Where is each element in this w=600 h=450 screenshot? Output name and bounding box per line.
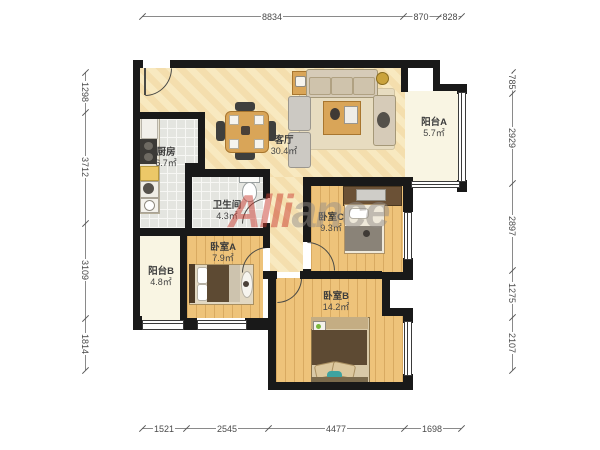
balcony-b-window xyxy=(142,320,184,330)
bed-a-throw xyxy=(229,265,240,302)
room-area: 4.8㎡ xyxy=(148,277,174,288)
wall-segment xyxy=(133,316,142,330)
bedroom-c-window xyxy=(404,212,412,260)
sofa-cushion xyxy=(353,77,375,95)
room-label-kitchen: 厨房 6.7㎡ xyxy=(155,147,177,169)
room-area: 4.3㎡ xyxy=(213,211,242,222)
wall-segment xyxy=(198,112,205,165)
room-name: 卧室B xyxy=(323,291,350,302)
room-label-bathroom: 卫生间 4.3㎡ xyxy=(213,200,242,222)
dim-value: 3712 xyxy=(80,156,90,178)
wall-segment xyxy=(185,169,270,177)
dim-value: 870 xyxy=(412,12,429,22)
stove-burner xyxy=(144,142,153,150)
dim-value: 785 xyxy=(507,73,517,90)
wall-segment xyxy=(170,60,440,68)
wall-segment xyxy=(133,112,205,119)
plate xyxy=(254,139,264,149)
toilet-bowl xyxy=(242,182,257,202)
dim-tick xyxy=(458,13,465,20)
dim-value: 2107 xyxy=(507,332,517,354)
wall-segment xyxy=(133,228,270,236)
dim-value: 3109 xyxy=(80,259,90,281)
dining-chair xyxy=(216,121,225,141)
sofa-cushion xyxy=(331,77,353,95)
room-label-balcony-b: 阳台B 4.8㎡ xyxy=(148,266,174,288)
dim-value: 4477 xyxy=(325,424,347,434)
room-name: 卧室C xyxy=(318,212,344,223)
dim-value: 2545 xyxy=(216,424,238,434)
wall-segment xyxy=(185,172,192,236)
wall-segment xyxy=(268,278,276,386)
room-label-balcony-a: 阳台A 5.7㎡ xyxy=(421,117,447,139)
balcony-a-bottom-window xyxy=(411,181,460,188)
hallway-floor xyxy=(270,177,303,272)
chaise-cushion xyxy=(377,112,390,128)
plate xyxy=(229,115,239,125)
room-label-living: 客厅 30.4㎡ xyxy=(271,135,298,157)
dining-chair xyxy=(235,102,255,111)
sink-basin xyxy=(143,183,154,194)
room-area: 14.2㎡ xyxy=(323,302,350,313)
building-notch xyxy=(390,280,403,308)
bed-a-headboard xyxy=(189,264,195,303)
dim-value: 2929 xyxy=(507,127,517,149)
bedroom-b-window xyxy=(404,321,412,376)
plate xyxy=(254,115,264,125)
room-name: 卫生间 xyxy=(213,200,242,211)
dim-value: 1521 xyxy=(153,424,175,434)
wall-segment xyxy=(303,177,413,186)
wall-segment xyxy=(180,236,187,330)
balcony-a-window xyxy=(458,92,466,182)
tv-screen xyxy=(356,189,386,201)
room-name: 阳台A xyxy=(421,117,447,128)
teapot xyxy=(330,108,340,120)
room-area: 5.7㎡ xyxy=(421,128,447,139)
table-lamp xyxy=(295,76,306,87)
bed-b-duvet xyxy=(312,330,367,365)
dim-value: 1814 xyxy=(80,333,90,355)
wall-segment xyxy=(268,382,413,390)
dimension-line-bottom xyxy=(142,428,461,429)
bed-a-duvet xyxy=(207,265,229,302)
bedside-rug-dot xyxy=(243,281,249,287)
kettle-lid xyxy=(144,200,155,211)
centerpiece xyxy=(241,126,250,135)
wall-segment xyxy=(263,177,270,198)
room-area: 9.3㎡ xyxy=(318,223,344,234)
dim-value: 2897 xyxy=(507,215,517,237)
dim-value: 8834 xyxy=(261,12,283,22)
tray xyxy=(344,106,358,124)
pillow xyxy=(349,208,369,219)
room-area: 6.7㎡ xyxy=(155,158,177,169)
dim-tick xyxy=(82,367,89,374)
wall-segment xyxy=(382,308,413,316)
room-name: 阳台B xyxy=(148,266,174,277)
wall-segment xyxy=(263,236,270,248)
plate xyxy=(229,139,239,149)
dim-tick xyxy=(509,367,516,374)
dim-tick xyxy=(458,425,465,432)
wall-segment xyxy=(245,318,276,330)
dim-value: 1698 xyxy=(421,424,443,434)
room-name: 卧室A xyxy=(210,242,236,253)
bedroom-a-window xyxy=(197,320,247,330)
wall-segment xyxy=(133,60,140,318)
room-name: 厨房 xyxy=(155,147,177,158)
cutting-board xyxy=(141,116,158,139)
floor-plan: 厨房 6.7㎡ 客厅 30.4㎡ 阳台A 5.7㎡ 卫生间 4.3㎡ 卧室C 9… xyxy=(0,0,600,450)
wall-segment xyxy=(303,177,311,242)
dim-value: 1298 xyxy=(80,81,90,103)
room-area: 7.9㎡ xyxy=(210,253,236,264)
wall-segment xyxy=(303,269,311,278)
room-label-bedroom-a: 卧室A 7.9㎡ xyxy=(210,242,236,264)
room-label-bedroom-c: 卧室C 9.3㎡ xyxy=(318,212,344,234)
bed-c-cushion xyxy=(363,230,370,237)
wall-segment xyxy=(300,271,382,279)
decor-bowl xyxy=(376,72,389,85)
armchair xyxy=(288,96,311,131)
wall-segment xyxy=(401,68,408,92)
room-name: 客厅 xyxy=(271,135,298,146)
dim-value: 1275 xyxy=(507,282,517,304)
door-leaf-entrance xyxy=(144,68,146,95)
room-label-bedroom-b: 卧室B 14.2㎡ xyxy=(323,291,350,313)
dim-value: 828 xyxy=(441,12,458,22)
sofa-cushion xyxy=(309,77,331,95)
room-area: 30.4㎡ xyxy=(271,146,298,157)
bed-b-plant xyxy=(316,324,321,329)
stove-burner xyxy=(144,153,153,161)
